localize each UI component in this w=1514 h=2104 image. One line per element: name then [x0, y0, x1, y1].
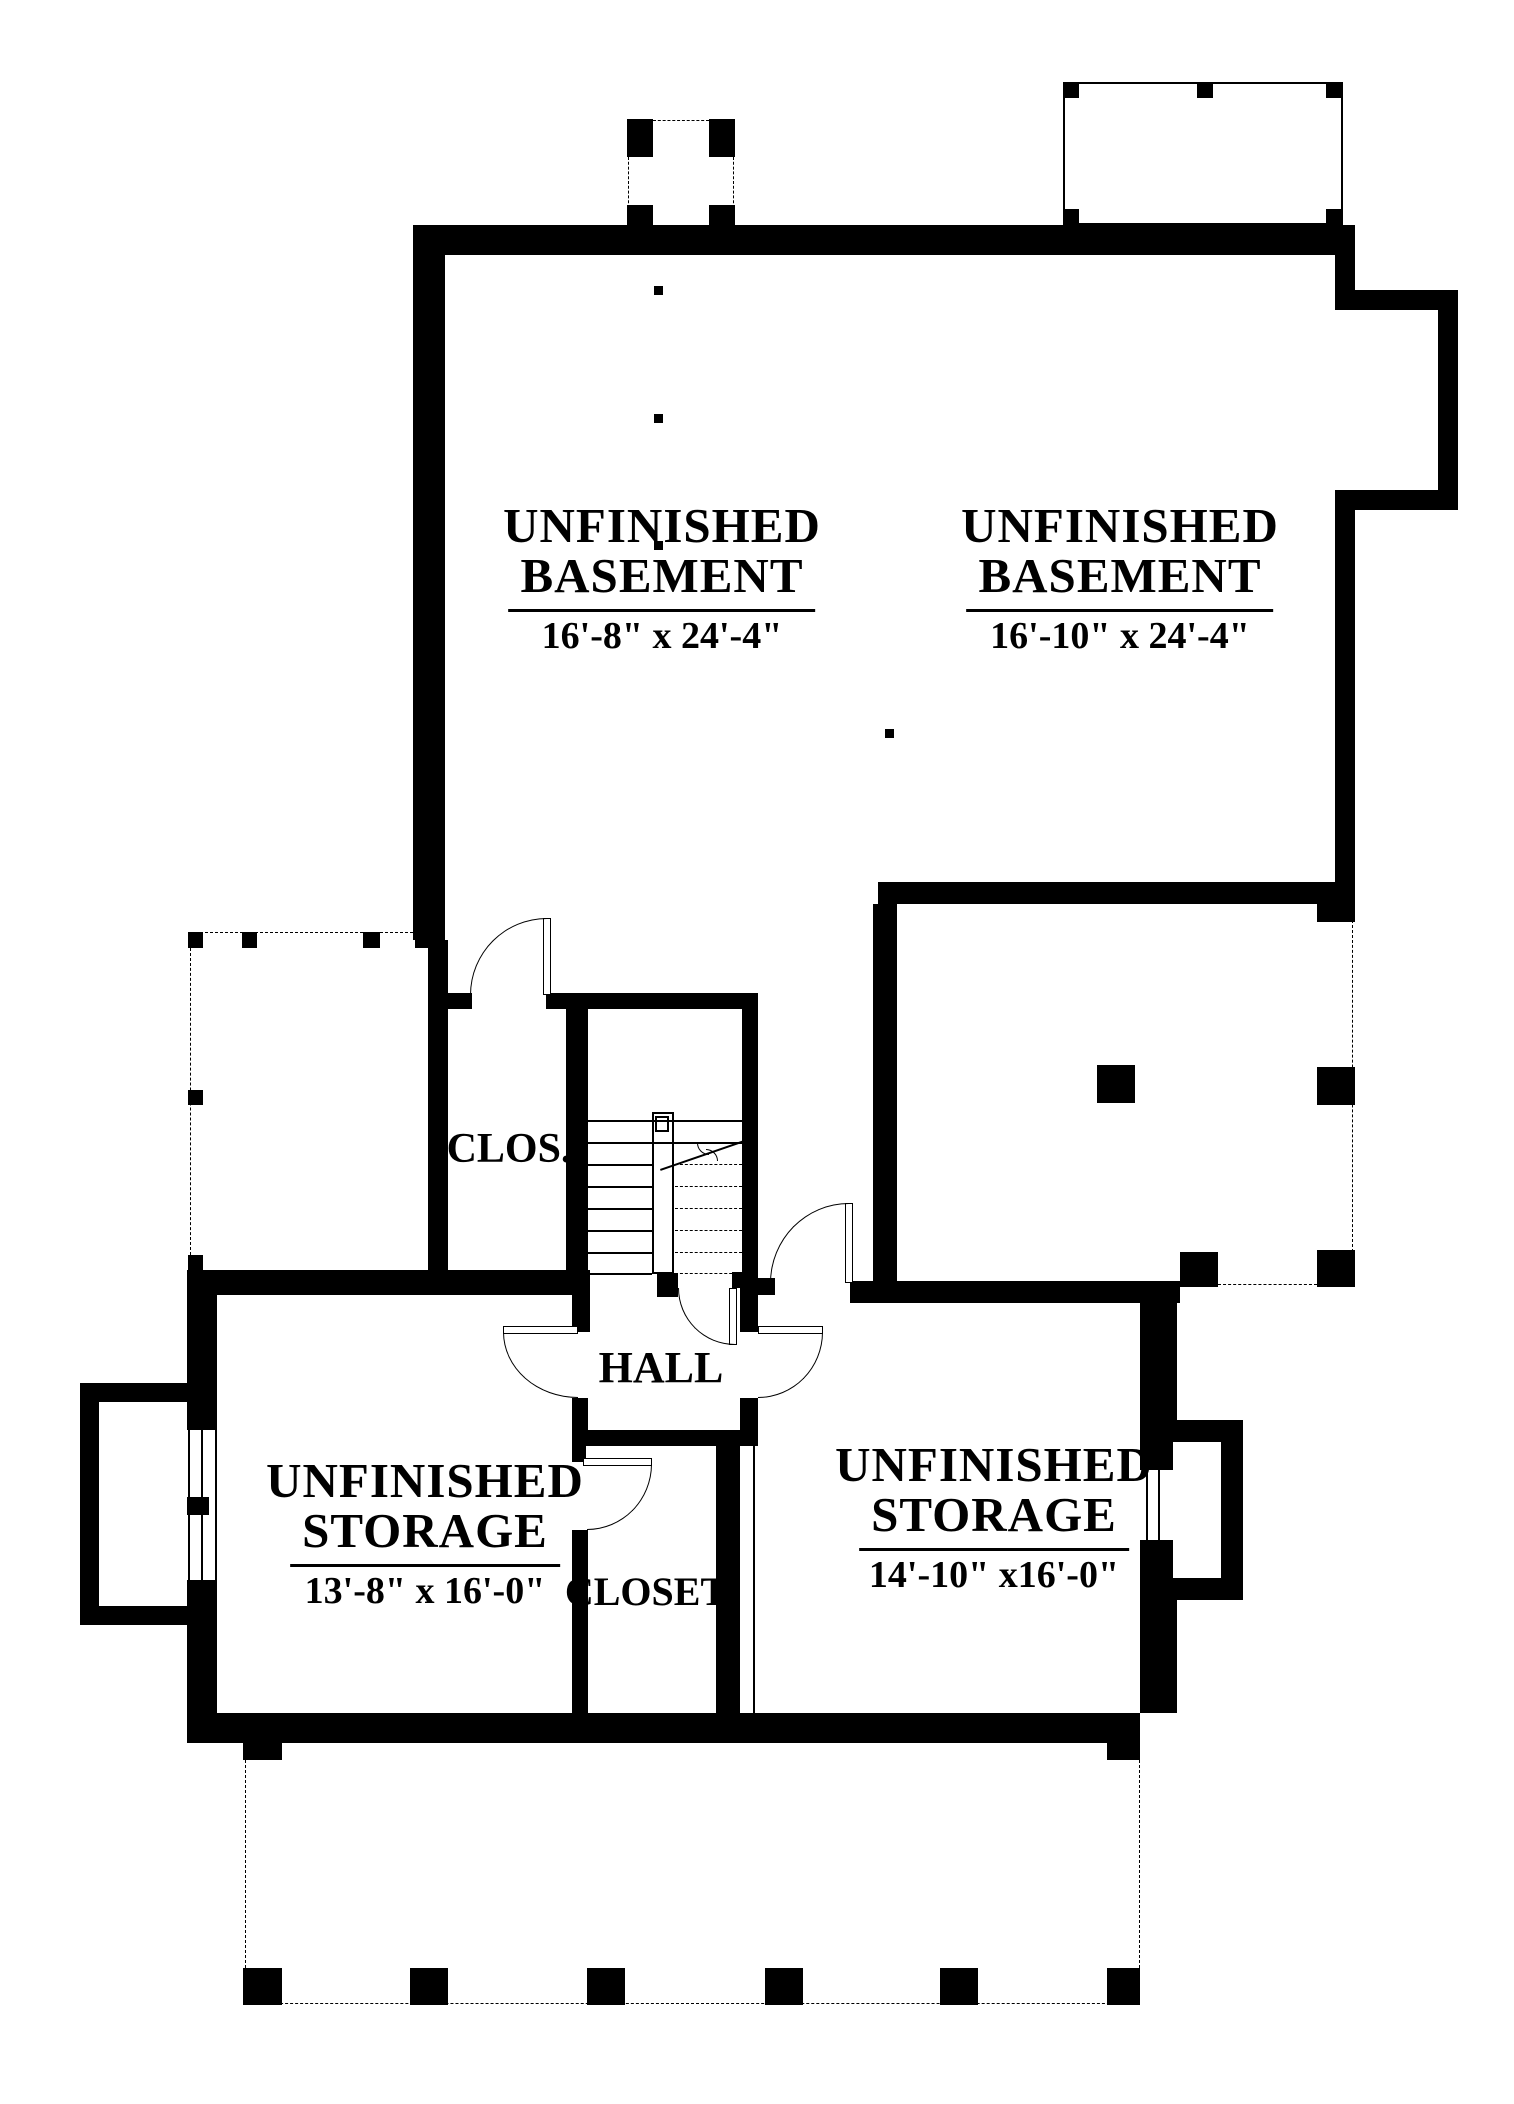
wall-leftbump-bottom [80, 1606, 217, 1625]
column-post [1097, 1065, 1135, 1103]
wall-leftbump-left [80, 1383, 99, 1625]
door-arc-understair [678, 1288, 735, 1345]
lporch-post-6 [188, 1255, 203, 1272]
lporch-dash-left [190, 948, 191, 1255]
wall-storage-right-east-a [1140, 1303, 1177, 1420]
bporch-dash-east [1139, 1760, 1140, 1968]
door-arc-closet [587, 1464, 652, 1530]
stair-tread-6 [588, 1230, 652, 1232]
stair-tread-8 [588, 1273, 652, 1275]
stair-tread-hidden-2 [675, 1186, 742, 1187]
wall-storage-left-north [187, 1270, 590, 1295]
column-dot-2 [654, 414, 663, 423]
room-label-basement-right-line2: BASEMENT [966, 551, 1273, 612]
stair-tread-5 [588, 1208, 652, 1210]
stoop-post-sw [627, 205, 653, 227]
door-arc-lowerright-room [770, 1203, 849, 1283]
lporch-post-3 [363, 932, 380, 948]
stair-tread-hidden-3 [675, 1208, 742, 1209]
stair-tread-hidden-4 [675, 1230, 742, 1231]
door-arc-clos-basement [470, 918, 547, 995]
column-dot-1 [654, 286, 663, 295]
wall-lowerright-west [873, 904, 897, 1284]
window-left-line-1 [188, 1430, 190, 1580]
wall-east-mid [1335, 490, 1355, 920]
rporch-post-n [1317, 898, 1355, 922]
room-label-basement-right-dimensions: 16'-10" x 24'-4" [961, 616, 1279, 656]
stoop-post-nw [627, 119, 653, 157]
closet-east-face-line [753, 1446, 755, 1713]
room-label-basement-right-line1: UNFINISHED [961, 501, 1279, 551]
wall-west-upper [413, 225, 445, 940]
room-label-storage-left-line2: STORAGE [290, 1506, 560, 1567]
wall-storage-right-north [850, 1281, 1180, 1303]
column-dot-4 [885, 729, 894, 738]
room-label-storage-right-line2: STORAGE [859, 1490, 1129, 1551]
room-label-basement-left-dimensions: 16'-8" x 24'-4" [503, 616, 821, 656]
wall-storage-left-west-b [187, 1580, 217, 1713]
bporch-post-s1 [243, 1968, 282, 2005]
wall-basement-south [878, 882, 1355, 904]
window-left-line-2 [201, 1430, 203, 1580]
wall-storage-left-west-a [187, 1272, 217, 1430]
bporch-dash-west [245, 1760, 246, 2003]
stair-tread-7 [588, 1252, 652, 1254]
window-left-line-3 [215, 1430, 217, 1580]
wall-top [413, 225, 1355, 255]
room-label-hall: HALL [599, 1342, 724, 1393]
wall-leftbump-top [80, 1383, 217, 1402]
wall-stair-stub-mid [657, 1273, 678, 1297]
window-mullion-left [187, 1497, 209, 1515]
stoop-post-ne [709, 119, 735, 157]
room-label-storage-right: UNFINISHEDSTORAGE14'-10" x16'-0" [835, 1440, 1153, 1595]
door-arc-storage-right [758, 1332, 823, 1398]
stair-tread-3 [588, 1164, 652, 1166]
wall-storage-right-east-b [1140, 1600, 1177, 1713]
stair-tread-hidden-5 [675, 1252, 742, 1253]
stair-rail [652, 1112, 674, 1274]
lporch-post-2 [242, 932, 257, 948]
bporch-post-ne [1107, 1743, 1140, 1760]
stair-tread-hidden-1 [675, 1164, 742, 1165]
stair-tread-hidden-6 [675, 1273, 742, 1274]
room-label-basement-right: UNFINISHEDBASEMENT16'-10" x 24'-4" [961, 501, 1279, 656]
bporch-post-s2 [410, 1968, 448, 2005]
room-label-clos: CLOS. [447, 1125, 572, 1173]
rporch-dash-east [1352, 920, 1353, 1252]
stoop-dash-right [733, 157, 734, 208]
bporch-post-s5 [940, 1968, 978, 2005]
rporch-dash-south [1218, 1284, 1317, 1285]
room-label-basement-left: UNFINISHEDBASEMENT16'-8" x 24'-4" [503, 501, 821, 656]
stoop-post-se [709, 205, 735, 227]
stoop-dash-left [628, 157, 629, 208]
trporch-outline [1063, 82, 1343, 225]
room-label-basement-left-line1: UNFINISHED [503, 501, 821, 551]
floor-plan-canvas: UNFINISHEDBASEMENT16'-8" x 24'-4"UNFINIS… [0, 0, 1514, 2104]
window-right-line-2 [1158, 1470, 1160, 1540]
wall-stair-stub-right [732, 1272, 758, 1288]
rporch-post-s [1180, 1252, 1218, 1287]
bporch-post-s6 [1107, 1968, 1140, 2005]
bporch-dash-south [245, 2003, 1140, 2004]
wall-bottom [187, 1713, 1140, 1743]
room-label-basement-left-line2: BASEMENT [508, 551, 815, 612]
stoop-dash-top [653, 120, 709, 121]
wall-closet-north [580, 1430, 755, 1446]
stair-tread-2 [588, 1142, 742, 1144]
rporch-post-se [1317, 1250, 1355, 1287]
room-label-storage-right-line1: UNFINISHED [835, 1440, 1153, 1490]
wall-storage-right-west-a [740, 1288, 758, 1332]
lporch-post-4 [415, 932, 430, 948]
lporch-post-1 [188, 932, 203, 948]
bporch-post-s3 [587, 1968, 625, 2005]
lporch-dash-top [190, 932, 428, 933]
room-label-storage-right-dimensions: 14'-10" x16'-0" [835, 1555, 1153, 1595]
rporch-post-e [1317, 1067, 1355, 1105]
room-label-closet: CLOSET [565, 1568, 727, 1615]
room-label-storage-left: UNFINISHEDSTORAGE13'-8" x 16'-0" [266, 1456, 584, 1611]
wall-storage-right-west-b [740, 1398, 758, 1446]
room-label-storage-left-dimensions: 13'-8" x 16'-0" [266, 1571, 584, 1611]
stair-rail-cap [655, 1116, 669, 1132]
wall-stair-top-b [546, 993, 758, 1009]
stair-tread-1 [588, 1120, 742, 1122]
room-label-storage-left-line1: UNFINISHED [266, 1456, 584, 1506]
door-arc-storage-left [503, 1332, 578, 1398]
bporch-post-nw [243, 1743, 282, 1760]
wall-rightbump-right [1221, 1420, 1243, 1600]
stair-tread-4 [588, 1186, 652, 1188]
wall-east-bump-bottom [1352, 490, 1458, 510]
wall-stair-top-a [428, 993, 472, 1009]
bporch-post-s4 [765, 1968, 803, 2005]
wall-east-bump-right [1438, 290, 1458, 510]
